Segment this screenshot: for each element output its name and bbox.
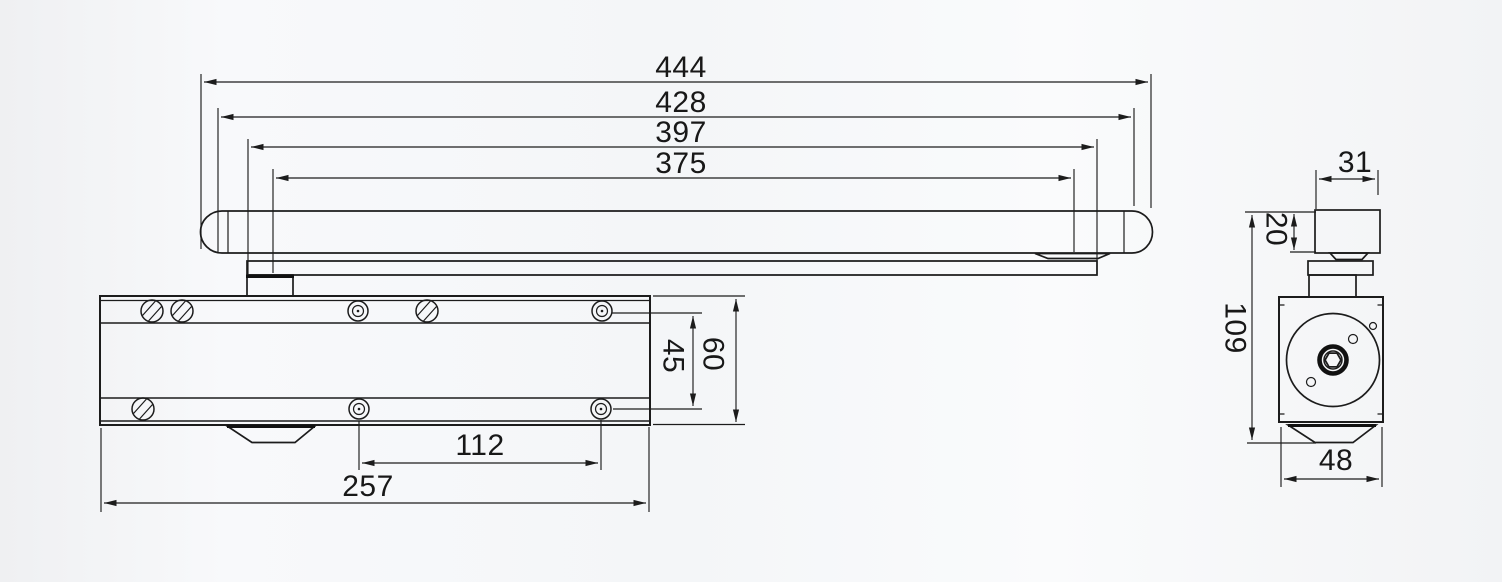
mounting-plate xyxy=(247,261,1097,275)
dim-label-428: 428 xyxy=(655,86,707,119)
side-view: 31 20 109 48 xyxy=(1219,146,1384,487)
dimension-397: 397 xyxy=(248,116,1097,274)
small-hole xyxy=(1349,335,1358,344)
hex-socket-icon xyxy=(1325,353,1341,367)
mounting-hole xyxy=(592,301,612,321)
small-hole xyxy=(1370,323,1377,330)
screw-icon xyxy=(132,398,154,420)
shoe-side xyxy=(1330,253,1368,260)
channel-cross-section xyxy=(1315,210,1380,253)
mounting-hole xyxy=(591,399,611,419)
dimension-31: 31 xyxy=(1316,146,1378,209)
dimension-112: 112 xyxy=(359,420,601,470)
arm-neck-side xyxy=(1309,275,1356,297)
screw-icon xyxy=(141,300,163,322)
dim-label-45: 45 xyxy=(657,339,690,373)
closer-body-side xyxy=(1279,297,1383,422)
closer-body xyxy=(100,296,650,425)
screw-icon xyxy=(416,300,438,322)
dimension-20: 20 xyxy=(1260,212,1317,252)
dimension-45: 45 xyxy=(612,313,702,409)
slider-shoe xyxy=(1035,254,1110,259)
dim-label-375: 375 xyxy=(655,147,707,180)
cam-face xyxy=(1287,314,1380,407)
screw-icon xyxy=(171,300,193,322)
dim-label-48: 48 xyxy=(1319,444,1353,477)
valve-cover xyxy=(227,426,315,443)
valve-cover-side xyxy=(1288,425,1376,443)
dim-label-444: 444 xyxy=(655,51,707,84)
dim-label-397: 397 xyxy=(655,116,707,149)
dimension-257: 257 xyxy=(101,427,649,512)
door-closer-technical-drawing: 444 428 397 375 45 60 xyxy=(0,0,1502,582)
dim-label-109: 109 xyxy=(1219,302,1252,354)
dimension-48: 48 xyxy=(1281,427,1382,487)
dimension-375: 375 xyxy=(273,147,1074,273)
plate-side xyxy=(1308,261,1373,275)
dim-label-20: 20 xyxy=(1260,212,1293,246)
slide-channel xyxy=(201,211,1153,253)
dim-label-112: 112 xyxy=(455,429,504,462)
front-view: 444 428 397 375 45 60 xyxy=(100,51,1152,512)
mounting-hole xyxy=(349,399,369,419)
arm-block xyxy=(246,275,294,296)
dim-label-31: 31 xyxy=(1338,146,1372,179)
dim-label-60: 60 xyxy=(697,337,730,371)
dimension-109: 109 xyxy=(1219,212,1317,443)
dim-label-257: 257 xyxy=(342,470,394,503)
mounting-hole xyxy=(348,301,368,321)
small-hole xyxy=(1307,378,1316,387)
